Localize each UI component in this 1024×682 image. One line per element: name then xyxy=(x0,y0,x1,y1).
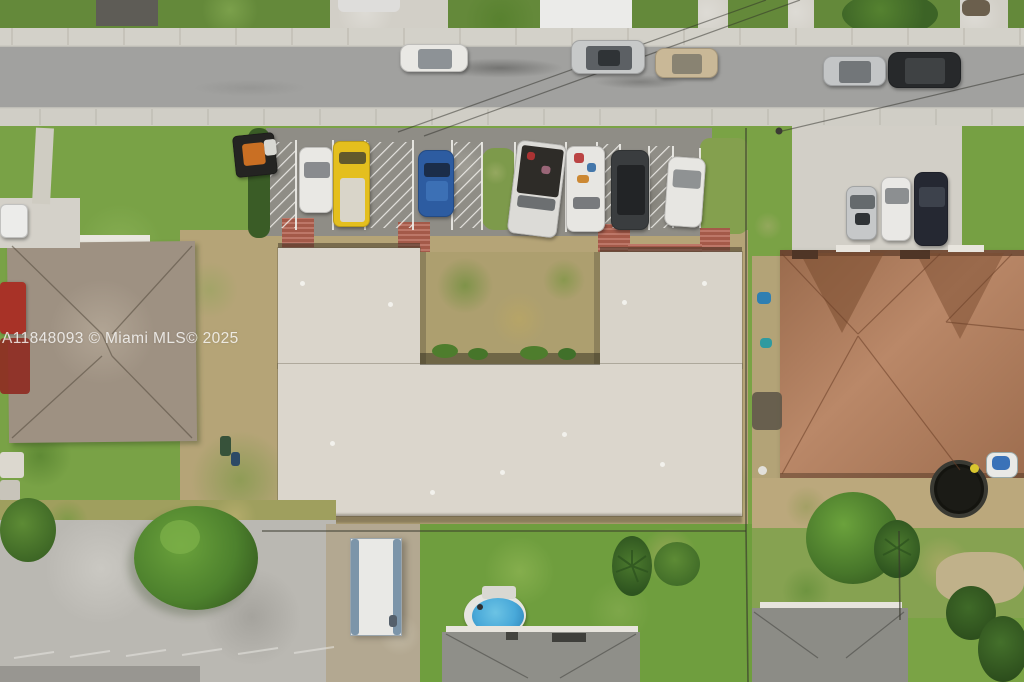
stall-suv-dark-gray xyxy=(611,150,649,230)
car-glass xyxy=(672,54,702,74)
car-glass xyxy=(839,61,871,83)
skid-steer-loader xyxy=(232,132,278,178)
car-glass xyxy=(905,58,945,84)
driveway-car-navy xyxy=(914,172,948,246)
aerial-photo: A11848093 © Miami MLS© 2025 xyxy=(0,0,1024,682)
palm-fronds xyxy=(616,539,911,582)
cargo-item xyxy=(541,165,551,174)
stall-van-yellow xyxy=(333,141,370,227)
van-glass xyxy=(573,197,600,209)
sunroof xyxy=(855,213,870,225)
right-house-ridges xyxy=(782,254,1024,474)
loader-body xyxy=(242,142,266,166)
sunroof xyxy=(598,50,620,66)
suv-glass xyxy=(672,169,701,189)
car-glass xyxy=(418,49,452,69)
parked-car-silver-sedan xyxy=(823,56,886,86)
stall-suv-white xyxy=(664,156,707,228)
car-glass xyxy=(424,163,450,177)
pickup-bed-cargo xyxy=(516,145,564,198)
loader-bag xyxy=(263,139,277,156)
car-glass xyxy=(885,188,909,204)
driveway-car-silver xyxy=(846,186,877,240)
cargo-item xyxy=(577,175,589,183)
stall-car-white-sedan xyxy=(299,147,333,213)
parked-suv-silver xyxy=(571,40,645,74)
bottom-house-ridges xyxy=(446,612,904,678)
car-glass xyxy=(304,162,330,178)
cargo-item xyxy=(587,163,596,172)
parked-car-black-sedan xyxy=(888,52,961,88)
stall-car-blue xyxy=(418,150,454,217)
parked-car-white-sedan xyxy=(400,44,468,72)
van-windshield xyxy=(339,152,366,164)
driveway-car-white xyxy=(881,177,911,241)
pickup-glass xyxy=(517,195,556,212)
cargo-item xyxy=(527,152,536,161)
car-glass xyxy=(850,195,875,209)
stall-van-white-loaded xyxy=(566,146,605,232)
cargo-item xyxy=(574,153,584,163)
parked-car-tan-sedan xyxy=(655,48,718,78)
power-pole xyxy=(776,128,783,135)
van-cargo-top xyxy=(340,178,365,222)
car-glass xyxy=(919,187,945,207)
mls-watermark: A11848093 © Miami MLS© 2025 xyxy=(2,330,239,348)
faded-stall-dashes xyxy=(14,647,334,658)
suv-glass xyxy=(617,165,645,215)
car-roof xyxy=(426,181,448,201)
